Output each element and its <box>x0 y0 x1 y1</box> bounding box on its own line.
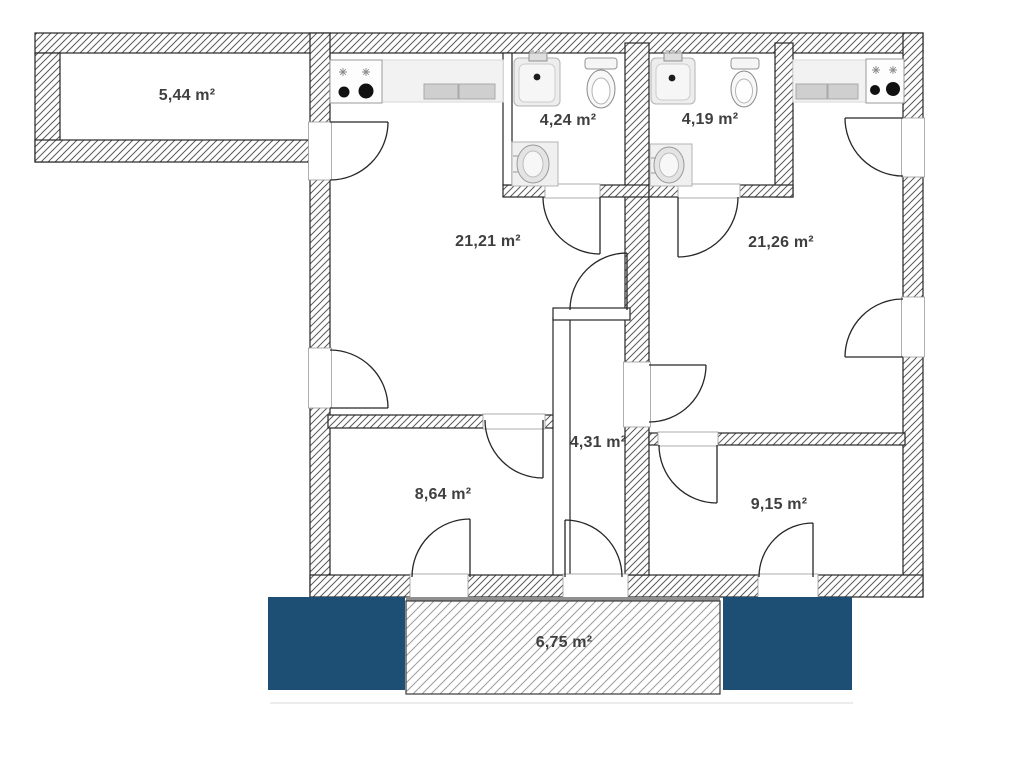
room-label-room-bottom-right: 9,15 m² <box>751 496 808 514</box>
kitchen-sink-icon <box>828 84 858 99</box>
door-swing <box>543 197 600 254</box>
kitchen-left <box>330 60 503 103</box>
door-opening <box>758 574 818 599</box>
door-opening <box>410 574 468 599</box>
neighbor-balcony-left-block <box>268 597 405 690</box>
room-label-room-right: 21,26 m² <box>748 234 814 252</box>
door-opening <box>902 297 925 357</box>
wall-bath-right-east <box>775 43 793 197</box>
door-opening <box>624 362 651 427</box>
wall-balcony-bottom <box>35 140 310 162</box>
room-label-bath-right: 4,19 m² <box>682 111 739 129</box>
door-swing <box>570 253 627 310</box>
bath-sink-icon <box>651 50 695 104</box>
kitchen-sink-icon <box>459 84 495 99</box>
room-label-hallway: 4,31 m² <box>570 434 627 452</box>
room-label-room-left: 21,21 m² <box>455 233 521 251</box>
wall-bath-left-west <box>503 53 512 185</box>
door-swing <box>678 197 738 257</box>
wall-building-left <box>310 33 330 598</box>
washing-machine-icon <box>512 142 558 186</box>
door-opening <box>309 122 332 180</box>
door-opening <box>309 348 332 408</box>
door-swing <box>330 122 388 180</box>
door-swing <box>759 523 813 577</box>
stove-icon <box>866 59 904 103</box>
door-swing <box>659 445 717 503</box>
floor-plan: 5,44 m² 21,21 m² 4,24 m² 4,19 m² 21,26 m… <box>0 0 1015 768</box>
door-opening <box>658 432 718 446</box>
kitchen-sink-icon <box>424 84 458 99</box>
neighbor-balcony-right-block <box>723 597 852 690</box>
kitchen-sink-icon <box>796 84 827 99</box>
door-swing <box>845 118 903 176</box>
door-swing <box>565 520 622 577</box>
washing-machine-icon <box>650 144 692 186</box>
door-swing <box>412 519 470 577</box>
thin-walls <box>503 53 630 575</box>
room-label-bath-left: 4,24 m² <box>540 112 597 130</box>
room-label-balcony-bottom: 6,75 m² <box>536 634 593 652</box>
stove-icon <box>330 60 382 103</box>
door-opening <box>902 118 925 177</box>
room-label-room-bottom-left: 8,64 m² <box>415 486 472 504</box>
kitchen-right <box>793 59 904 103</box>
door-opening <box>483 414 545 429</box>
toilet-icon <box>585 58 617 108</box>
room-label-balcony-top: 5,44 m² <box>159 87 216 105</box>
door-swing <box>845 299 903 357</box>
floor-plan-drawing <box>0 0 1015 768</box>
door-swing <box>649 365 706 422</box>
bath-sink-icon <box>514 50 560 106</box>
hallway-threshold <box>553 308 630 320</box>
wall-hallway-left <box>553 318 570 575</box>
door-opening <box>563 574 628 599</box>
toilet-icon <box>731 58 759 107</box>
door-swing <box>330 350 388 408</box>
